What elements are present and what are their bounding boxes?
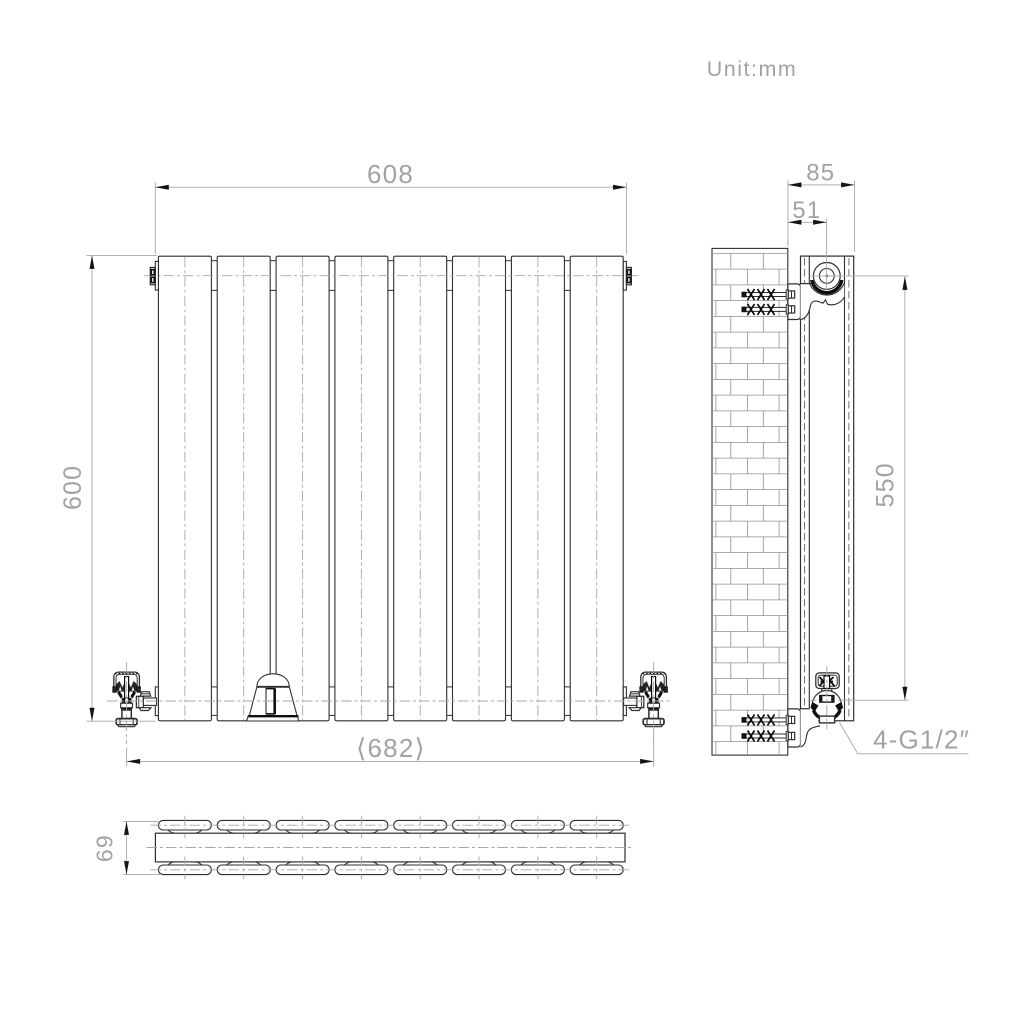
svg-text:69: 69: [92, 834, 118, 862]
svg-text:85: 85: [806, 160, 835, 187]
svg-text:608: 608: [367, 159, 414, 189]
svg-text:Unit:mm: Unit:mm: [707, 57, 798, 81]
svg-text:4-G1/2″: 4-G1/2″: [873, 725, 970, 755]
svg-text:⟨682⟩: ⟨682⟩: [356, 733, 426, 763]
svg-text:550: 550: [872, 462, 900, 507]
svg-text:600: 600: [59, 465, 87, 510]
svg-text:51: 51: [792, 197, 821, 224]
